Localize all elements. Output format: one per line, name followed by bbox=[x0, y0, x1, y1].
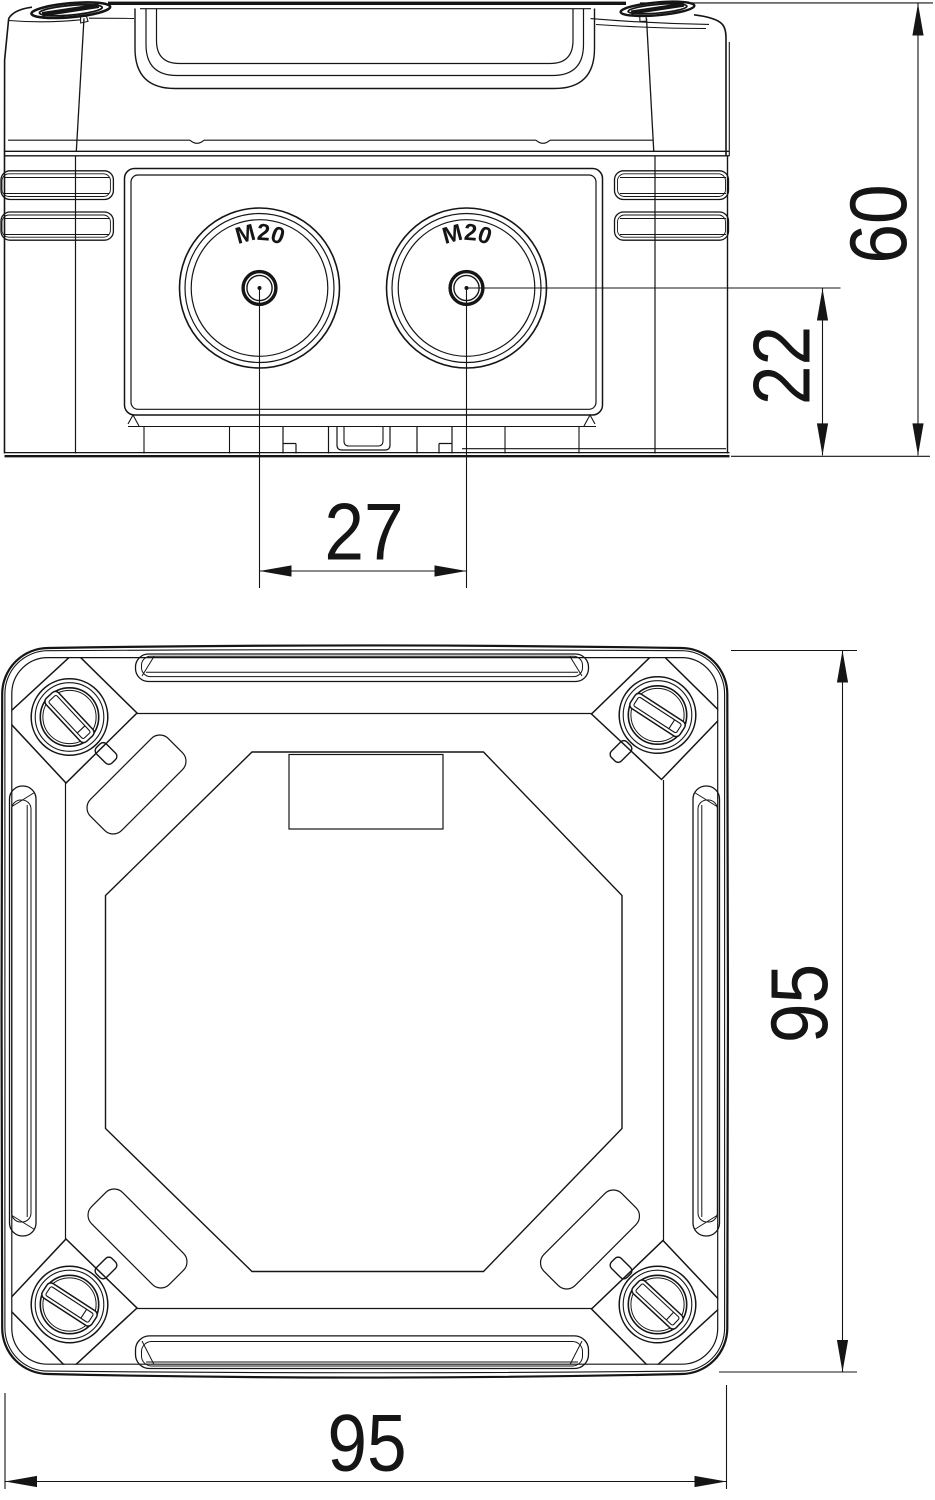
svg-text:22: 22 bbox=[737, 326, 827, 405]
svg-text:27: 27 bbox=[324, 487, 403, 577]
svg-text:95: 95 bbox=[327, 1398, 406, 1488]
svg-text:60: 60 bbox=[834, 184, 924, 263]
svg-text:M20: M20 bbox=[232, 219, 288, 250]
svg-text:M20: M20 bbox=[439, 219, 495, 250]
svg-text:95: 95 bbox=[755, 964, 845, 1043]
